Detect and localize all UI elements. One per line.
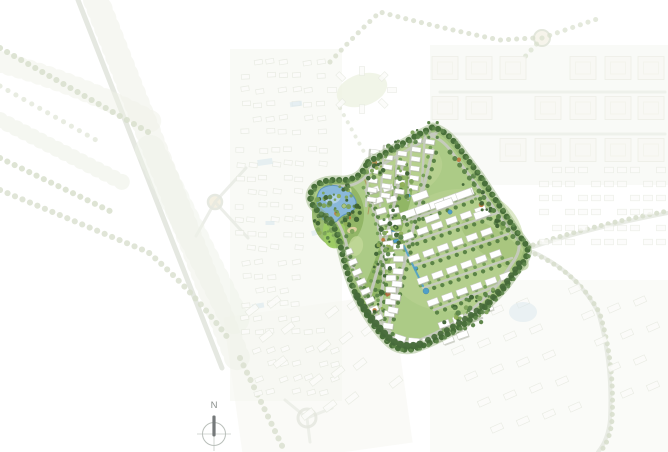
faded-building bbox=[294, 188, 302, 193]
faded-building bbox=[540, 209, 549, 215]
faded-building bbox=[618, 167, 627, 173]
faded-building bbox=[241, 329, 249, 334]
faded-building bbox=[319, 161, 327, 166]
faded-building bbox=[259, 202, 267, 207]
map-dot bbox=[336, 210, 339, 213]
map-dot bbox=[358, 206, 361, 209]
map-dot bbox=[346, 204, 351, 209]
map-dot bbox=[396, 241, 400, 245]
faded-building bbox=[272, 162, 280, 167]
faded-building bbox=[284, 176, 292, 181]
faded-building bbox=[247, 245, 255, 250]
faded-building bbox=[657, 195, 666, 201]
faded-block bbox=[466, 57, 492, 80]
faded-building bbox=[284, 205, 292, 210]
map-dot bbox=[479, 201, 484, 206]
faded-building bbox=[291, 301, 299, 306]
map-dot bbox=[371, 175, 376, 180]
map-dot bbox=[372, 173, 374, 175]
faded-pool bbox=[266, 221, 275, 225]
map-dot bbox=[383, 274, 386, 277]
building bbox=[411, 156, 421, 162]
faded-block bbox=[570, 57, 596, 80]
building bbox=[425, 149, 435, 155]
faded-building bbox=[579, 225, 588, 231]
map-dot bbox=[334, 198, 337, 201]
faded-building bbox=[657, 167, 666, 173]
map-dot bbox=[469, 295, 474, 300]
map-dot bbox=[366, 176, 371, 181]
faded-building bbox=[247, 177, 255, 182]
faded-building bbox=[566, 181, 575, 187]
map-dot bbox=[350, 194, 353, 197]
map-dot bbox=[351, 210, 355, 214]
building bbox=[393, 256, 403, 262]
map-dot bbox=[394, 226, 396, 228]
faded-building bbox=[579, 195, 588, 201]
map-dot bbox=[345, 199, 348, 202]
map-dot bbox=[474, 197, 477, 200]
map-dot bbox=[407, 186, 409, 188]
faded-building bbox=[592, 239, 601, 245]
faded-building bbox=[605, 181, 614, 187]
faded-building bbox=[235, 205, 243, 210]
faded-building bbox=[266, 116, 275, 122]
map-dot bbox=[423, 288, 429, 294]
faded-building bbox=[553, 167, 562, 173]
map-dot bbox=[391, 208, 395, 212]
faded-building bbox=[256, 89, 265, 95]
faded-building bbox=[540, 195, 549, 201]
map-dot bbox=[327, 201, 332, 206]
map-dot bbox=[414, 266, 417, 269]
faded-building bbox=[235, 217, 243, 222]
building bbox=[367, 197, 377, 203]
map-dot bbox=[504, 226, 506, 228]
map-dot bbox=[316, 221, 321, 226]
map-dot bbox=[386, 252, 391, 257]
faded-building bbox=[248, 189, 256, 194]
faded-building bbox=[328, 88, 337, 93]
map-dot bbox=[466, 168, 469, 171]
faded-building bbox=[566, 209, 575, 215]
building bbox=[412, 147, 422, 153]
map-dot bbox=[354, 217, 359, 222]
map-dot bbox=[379, 172, 382, 175]
faded-building bbox=[237, 163, 245, 168]
faded-building bbox=[260, 149, 268, 154]
map-dot bbox=[386, 231, 389, 234]
map-dot bbox=[345, 196, 348, 199]
map-dot bbox=[358, 211, 362, 215]
faded-building bbox=[644, 181, 653, 187]
map-dot bbox=[379, 162, 382, 165]
map-dot bbox=[456, 310, 461, 315]
map-dot bbox=[377, 243, 381, 247]
faded-building bbox=[279, 73, 287, 78]
faded-building bbox=[359, 67, 364, 76]
map-dot bbox=[406, 219, 409, 222]
faded-building bbox=[579, 167, 588, 173]
map-dot bbox=[373, 310, 377, 314]
map-dot bbox=[486, 208, 489, 211]
faded-building bbox=[254, 59, 263, 65]
building bbox=[397, 160, 407, 166]
map-dot bbox=[396, 244, 400, 248]
faded-building bbox=[317, 74, 325, 79]
map-dot bbox=[486, 217, 490, 221]
faded-building bbox=[259, 190, 267, 195]
faded-building bbox=[592, 209, 601, 215]
map-dot bbox=[407, 198, 410, 201]
map-dot bbox=[475, 300, 478, 303]
faded-building bbox=[605, 239, 614, 245]
faded-building bbox=[579, 209, 588, 215]
faded-building bbox=[644, 239, 653, 245]
faded-building bbox=[236, 231, 244, 236]
map-dot bbox=[477, 296, 482, 301]
north-label: N bbox=[211, 400, 218, 411]
north-arrow: N bbox=[197, 400, 231, 451]
faded-building bbox=[280, 300, 288, 305]
faded-building bbox=[278, 129, 286, 134]
faded-building bbox=[254, 274, 262, 279]
faded-building bbox=[631, 195, 640, 201]
building bbox=[386, 287, 396, 293]
map-dot bbox=[384, 248, 388, 252]
faded-building bbox=[241, 129, 249, 134]
map-dot bbox=[374, 252, 378, 256]
map-dot bbox=[453, 306, 457, 310]
faded-building bbox=[295, 233, 303, 238]
map-dot bbox=[399, 170, 402, 173]
map-dot bbox=[491, 288, 495, 292]
map-dot bbox=[347, 212, 350, 215]
building bbox=[382, 174, 392, 180]
faded-building bbox=[236, 148, 244, 153]
map-dot bbox=[442, 320, 446, 324]
faded-building bbox=[292, 130, 300, 135]
faded-building bbox=[605, 167, 614, 173]
faded-building bbox=[657, 239, 666, 245]
map-dot bbox=[328, 195, 333, 200]
faded-block bbox=[605, 139, 631, 162]
tree-row bbox=[340, 108, 364, 152]
map-dot bbox=[388, 245, 391, 248]
faded-building bbox=[304, 329, 312, 334]
map-dot bbox=[400, 182, 405, 187]
map-dot bbox=[328, 241, 330, 243]
faded-building bbox=[566, 239, 575, 245]
map-dot bbox=[401, 215, 406, 220]
map-dot bbox=[377, 303, 380, 306]
faded-building bbox=[295, 161, 303, 166]
faded-building bbox=[553, 225, 562, 231]
faded-block bbox=[432, 97, 458, 120]
map-dot bbox=[373, 266, 376, 269]
faded-building bbox=[605, 225, 614, 231]
map-dot bbox=[322, 203, 327, 208]
map-dot bbox=[343, 218, 348, 223]
map-dot bbox=[495, 224, 499, 228]
map-dot bbox=[409, 179, 414, 184]
map-dot bbox=[464, 298, 468, 302]
faded-building bbox=[249, 162, 257, 167]
faded-building bbox=[618, 239, 627, 245]
map-dot bbox=[326, 236, 330, 240]
map-dot bbox=[375, 166, 379, 170]
map-dot bbox=[405, 171, 409, 175]
faded-building bbox=[644, 195, 653, 201]
faded-building bbox=[253, 103, 261, 108]
map-dot bbox=[323, 231, 327, 235]
building bbox=[381, 183, 391, 189]
faded-building bbox=[285, 216, 293, 221]
map-dot bbox=[488, 210, 491, 213]
map-dot bbox=[382, 281, 385, 284]
map-dot bbox=[323, 195, 328, 200]
map-dot bbox=[338, 185, 341, 188]
map-dot bbox=[458, 316, 462, 320]
building bbox=[386, 275, 396, 281]
faded-building bbox=[242, 303, 250, 308]
faded-block bbox=[500, 57, 526, 80]
map-dot bbox=[347, 185, 350, 188]
faded-building bbox=[566, 225, 575, 231]
faded-building bbox=[644, 209, 653, 215]
building bbox=[383, 323, 394, 330]
building bbox=[395, 189, 405, 195]
faded-building bbox=[256, 330, 264, 335]
map-dot bbox=[392, 216, 394, 218]
faded-building bbox=[267, 101, 275, 106]
map-dot bbox=[407, 177, 410, 180]
map-dot bbox=[376, 263, 379, 266]
map-dot bbox=[468, 306, 473, 311]
faded-building bbox=[553, 181, 562, 187]
faded-building bbox=[553, 239, 562, 245]
map-dot bbox=[342, 204, 346, 208]
faded-building bbox=[267, 72, 275, 77]
faded-block bbox=[638, 139, 664, 162]
map-dot bbox=[327, 230, 329, 232]
map-dot bbox=[395, 177, 397, 179]
faded-building bbox=[271, 202, 279, 207]
map-shape bbox=[78, 0, 222, 368]
faded-block bbox=[535, 97, 561, 120]
building bbox=[410, 166, 420, 172]
faded-block bbox=[570, 97, 596, 120]
faded-building bbox=[303, 60, 312, 66]
map-dot bbox=[337, 194, 341, 198]
faded-building bbox=[618, 209, 627, 215]
faded-building bbox=[618, 181, 627, 187]
map-dot bbox=[336, 212, 341, 217]
faded-building bbox=[241, 74, 249, 79]
faded-building bbox=[305, 115, 314, 121]
faded-building bbox=[273, 189, 281, 194]
building bbox=[391, 219, 402, 226]
compass-needle-icon bbox=[212, 416, 215, 437]
faded-block bbox=[466, 97, 492, 120]
map-dot bbox=[350, 229, 355, 234]
faded-building bbox=[566, 167, 575, 173]
building bbox=[393, 268, 403, 274]
faded-building bbox=[272, 147, 280, 152]
faded-building bbox=[319, 148, 327, 153]
map-dot bbox=[454, 315, 458, 319]
map-dot bbox=[481, 208, 484, 211]
faded-building bbox=[657, 181, 666, 187]
map-dot bbox=[483, 293, 487, 297]
map-dot bbox=[380, 165, 382, 167]
map-blob bbox=[509, 302, 537, 322]
faded-building bbox=[258, 175, 266, 180]
map-dot bbox=[322, 192, 325, 195]
map-dot bbox=[398, 234, 403, 239]
faded-building bbox=[266, 58, 275, 64]
faded-building bbox=[631, 209, 640, 215]
faded-block bbox=[432, 57, 458, 80]
map-dot bbox=[383, 245, 386, 248]
map-dot bbox=[388, 266, 392, 270]
faded-building bbox=[292, 329, 300, 334]
faded-building bbox=[268, 275, 276, 280]
faded-building bbox=[253, 116, 262, 122]
map-dot bbox=[344, 222, 348, 226]
faded-building bbox=[360, 105, 365, 114]
map-dot bbox=[383, 218, 386, 221]
faded-building bbox=[388, 88, 397, 93]
building bbox=[425, 139, 435, 145]
faded-building bbox=[553, 195, 562, 201]
faded-building bbox=[295, 245, 303, 250]
map-dot bbox=[387, 221, 392, 226]
faded-building bbox=[631, 225, 640, 231]
faded-building bbox=[241, 86, 250, 92]
faded-building bbox=[279, 114, 288, 120]
faded-block bbox=[535, 139, 561, 162]
map-dot bbox=[333, 194, 335, 196]
faded-building bbox=[378, 98, 388, 108]
faded-block bbox=[500, 139, 526, 162]
faded-building bbox=[592, 181, 601, 187]
map-dot bbox=[393, 253, 396, 256]
faded-building bbox=[540, 181, 549, 187]
faded-block bbox=[638, 57, 664, 80]
faded-block bbox=[570, 139, 596, 162]
faded-building bbox=[284, 160, 292, 165]
faded-block bbox=[605, 97, 631, 120]
faded-building bbox=[246, 217, 254, 222]
building bbox=[381, 193, 391, 199]
map-dot bbox=[436, 136, 439, 139]
map-dot bbox=[405, 163, 407, 165]
faded-building bbox=[605, 195, 614, 201]
faded-block bbox=[605, 57, 631, 80]
faded-building bbox=[303, 102, 311, 107]
faded-building bbox=[295, 177, 303, 182]
faded-building bbox=[278, 87, 287, 93]
map-dot bbox=[427, 136, 430, 139]
faded-block bbox=[638, 97, 664, 120]
faded-building bbox=[258, 232, 266, 237]
building bbox=[367, 187, 377, 193]
building bbox=[392, 281, 403, 288]
faded-building bbox=[592, 195, 601, 201]
map-dot bbox=[334, 209, 337, 212]
faded-building bbox=[295, 216, 303, 221]
building bbox=[398, 151, 408, 157]
faded-building bbox=[631, 167, 640, 173]
faded-building bbox=[237, 176, 245, 181]
faded-building bbox=[657, 225, 666, 231]
faded-building bbox=[267, 128, 275, 133]
faded-building bbox=[243, 273, 251, 278]
map-dot bbox=[397, 176, 402, 181]
faded-building bbox=[540, 239, 549, 245]
faded-building bbox=[248, 231, 256, 236]
faded-building bbox=[618, 225, 627, 231]
faded-building bbox=[309, 147, 317, 152]
map-dot bbox=[344, 234, 348, 238]
masterplan-canvas: N bbox=[0, 0, 668, 452]
faded-building bbox=[318, 129, 326, 134]
faded-building bbox=[292, 275, 300, 280]
map-dot bbox=[381, 238, 385, 242]
faded-building bbox=[293, 86, 302, 92]
map-dot bbox=[462, 183, 465, 186]
faded-building bbox=[242, 101, 250, 106]
faded-building bbox=[279, 59, 288, 65]
faded-building bbox=[284, 232, 292, 237]
faded-building bbox=[258, 246, 266, 251]
map-dot bbox=[370, 169, 374, 173]
faded-building bbox=[304, 87, 313, 93]
map-dot bbox=[448, 210, 452, 214]
map-dot bbox=[409, 188, 412, 191]
map-dot bbox=[381, 307, 384, 310]
tree-row bbox=[0, 120, 122, 182]
map-dot bbox=[316, 227, 321, 232]
faded-building bbox=[317, 116, 326, 122]
map-dot bbox=[379, 290, 384, 295]
map-dot bbox=[379, 227, 384, 232]
faded-building bbox=[317, 59, 326, 65]
building bbox=[390, 293, 401, 300]
faded-building bbox=[316, 101, 324, 106]
faded-building bbox=[316, 328, 324, 333]
faded-building bbox=[292, 73, 300, 78]
faded-building bbox=[271, 244, 279, 249]
site-plan-map: N bbox=[0, 0, 668, 452]
faded-building bbox=[283, 147, 291, 152]
